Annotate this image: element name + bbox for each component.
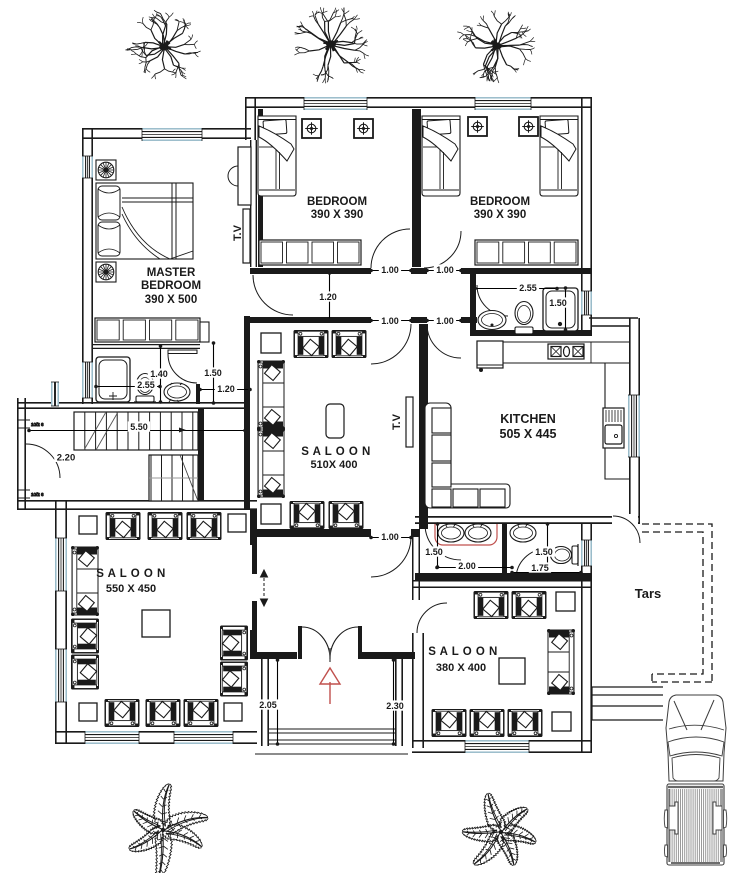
svg-text:1.50: 1.50	[549, 298, 567, 308]
svg-text:1.50: 1.50	[204, 368, 222, 378]
svg-text:10/2 6: 10/2 6	[31, 492, 44, 497]
svg-text:510X 400: 510X 400	[310, 459, 357, 471]
svg-text:MASTER: MASTER	[147, 267, 196, 279]
svg-text:2.05: 2.05	[259, 700, 277, 710]
svg-text:S A L O O N: S A L O O N	[301, 446, 371, 458]
svg-text:BEDROOM: BEDROOM	[141, 280, 201, 292]
svg-text:1.20: 1.20	[319, 292, 337, 302]
svg-text:S A L O O N: S A L O O N	[428, 646, 498, 658]
svg-text:2.55: 2.55	[519, 283, 537, 293]
svg-text:10/2 6: 10/2 6	[31, 422, 44, 427]
svg-text:2.55: 2.55	[137, 380, 155, 390]
svg-text:1.00: 1.00	[381, 316, 399, 326]
svg-text:2.30: 2.30	[386, 701, 404, 711]
svg-text:1.50: 1.50	[425, 547, 443, 557]
svg-text:1.00: 1.00	[381, 265, 399, 275]
svg-text:505 X 445: 505 X 445	[500, 427, 557, 441]
svg-text:5.50: 5.50	[130, 422, 148, 432]
svg-text:Tars: Tars	[635, 586, 662, 601]
svg-text:1.00: 1.00	[381, 532, 399, 542]
svg-text:1.00: 1.00	[436, 265, 454, 275]
svg-text:380 X 400: 380 X 400	[436, 662, 486, 674]
svg-text:S A L O O N: S A L O O N	[96, 568, 166, 580]
svg-text:390 X 390: 390 X 390	[311, 209, 363, 221]
svg-text:390 X 390: 390 X 390	[474, 209, 526, 221]
svg-text:1.00: 1.00	[436, 316, 454, 326]
svg-text:1.50: 1.50	[535, 547, 553, 557]
svg-text:2.00: 2.00	[458, 561, 476, 571]
svg-text:1.40: 1.40	[150, 369, 168, 379]
svg-text:1.20: 1.20	[217, 384, 235, 394]
svg-text:390 X 500: 390 X 500	[145, 294, 197, 306]
svg-text:2.20: 2.20	[57, 452, 76, 463]
svg-text:BEDROOM: BEDROOM	[470, 196, 530, 208]
svg-text:T.V: T.V	[232, 224, 244, 241]
svg-text:T.V: T.V	[391, 413, 403, 430]
svg-text:KITCHEN: KITCHEN	[500, 412, 556, 426]
svg-text:BEDROOM: BEDROOM	[307, 196, 367, 208]
svg-text:1.75: 1.75	[531, 563, 549, 573]
svg-text:550 X 450: 550 X 450	[106, 583, 156, 595]
